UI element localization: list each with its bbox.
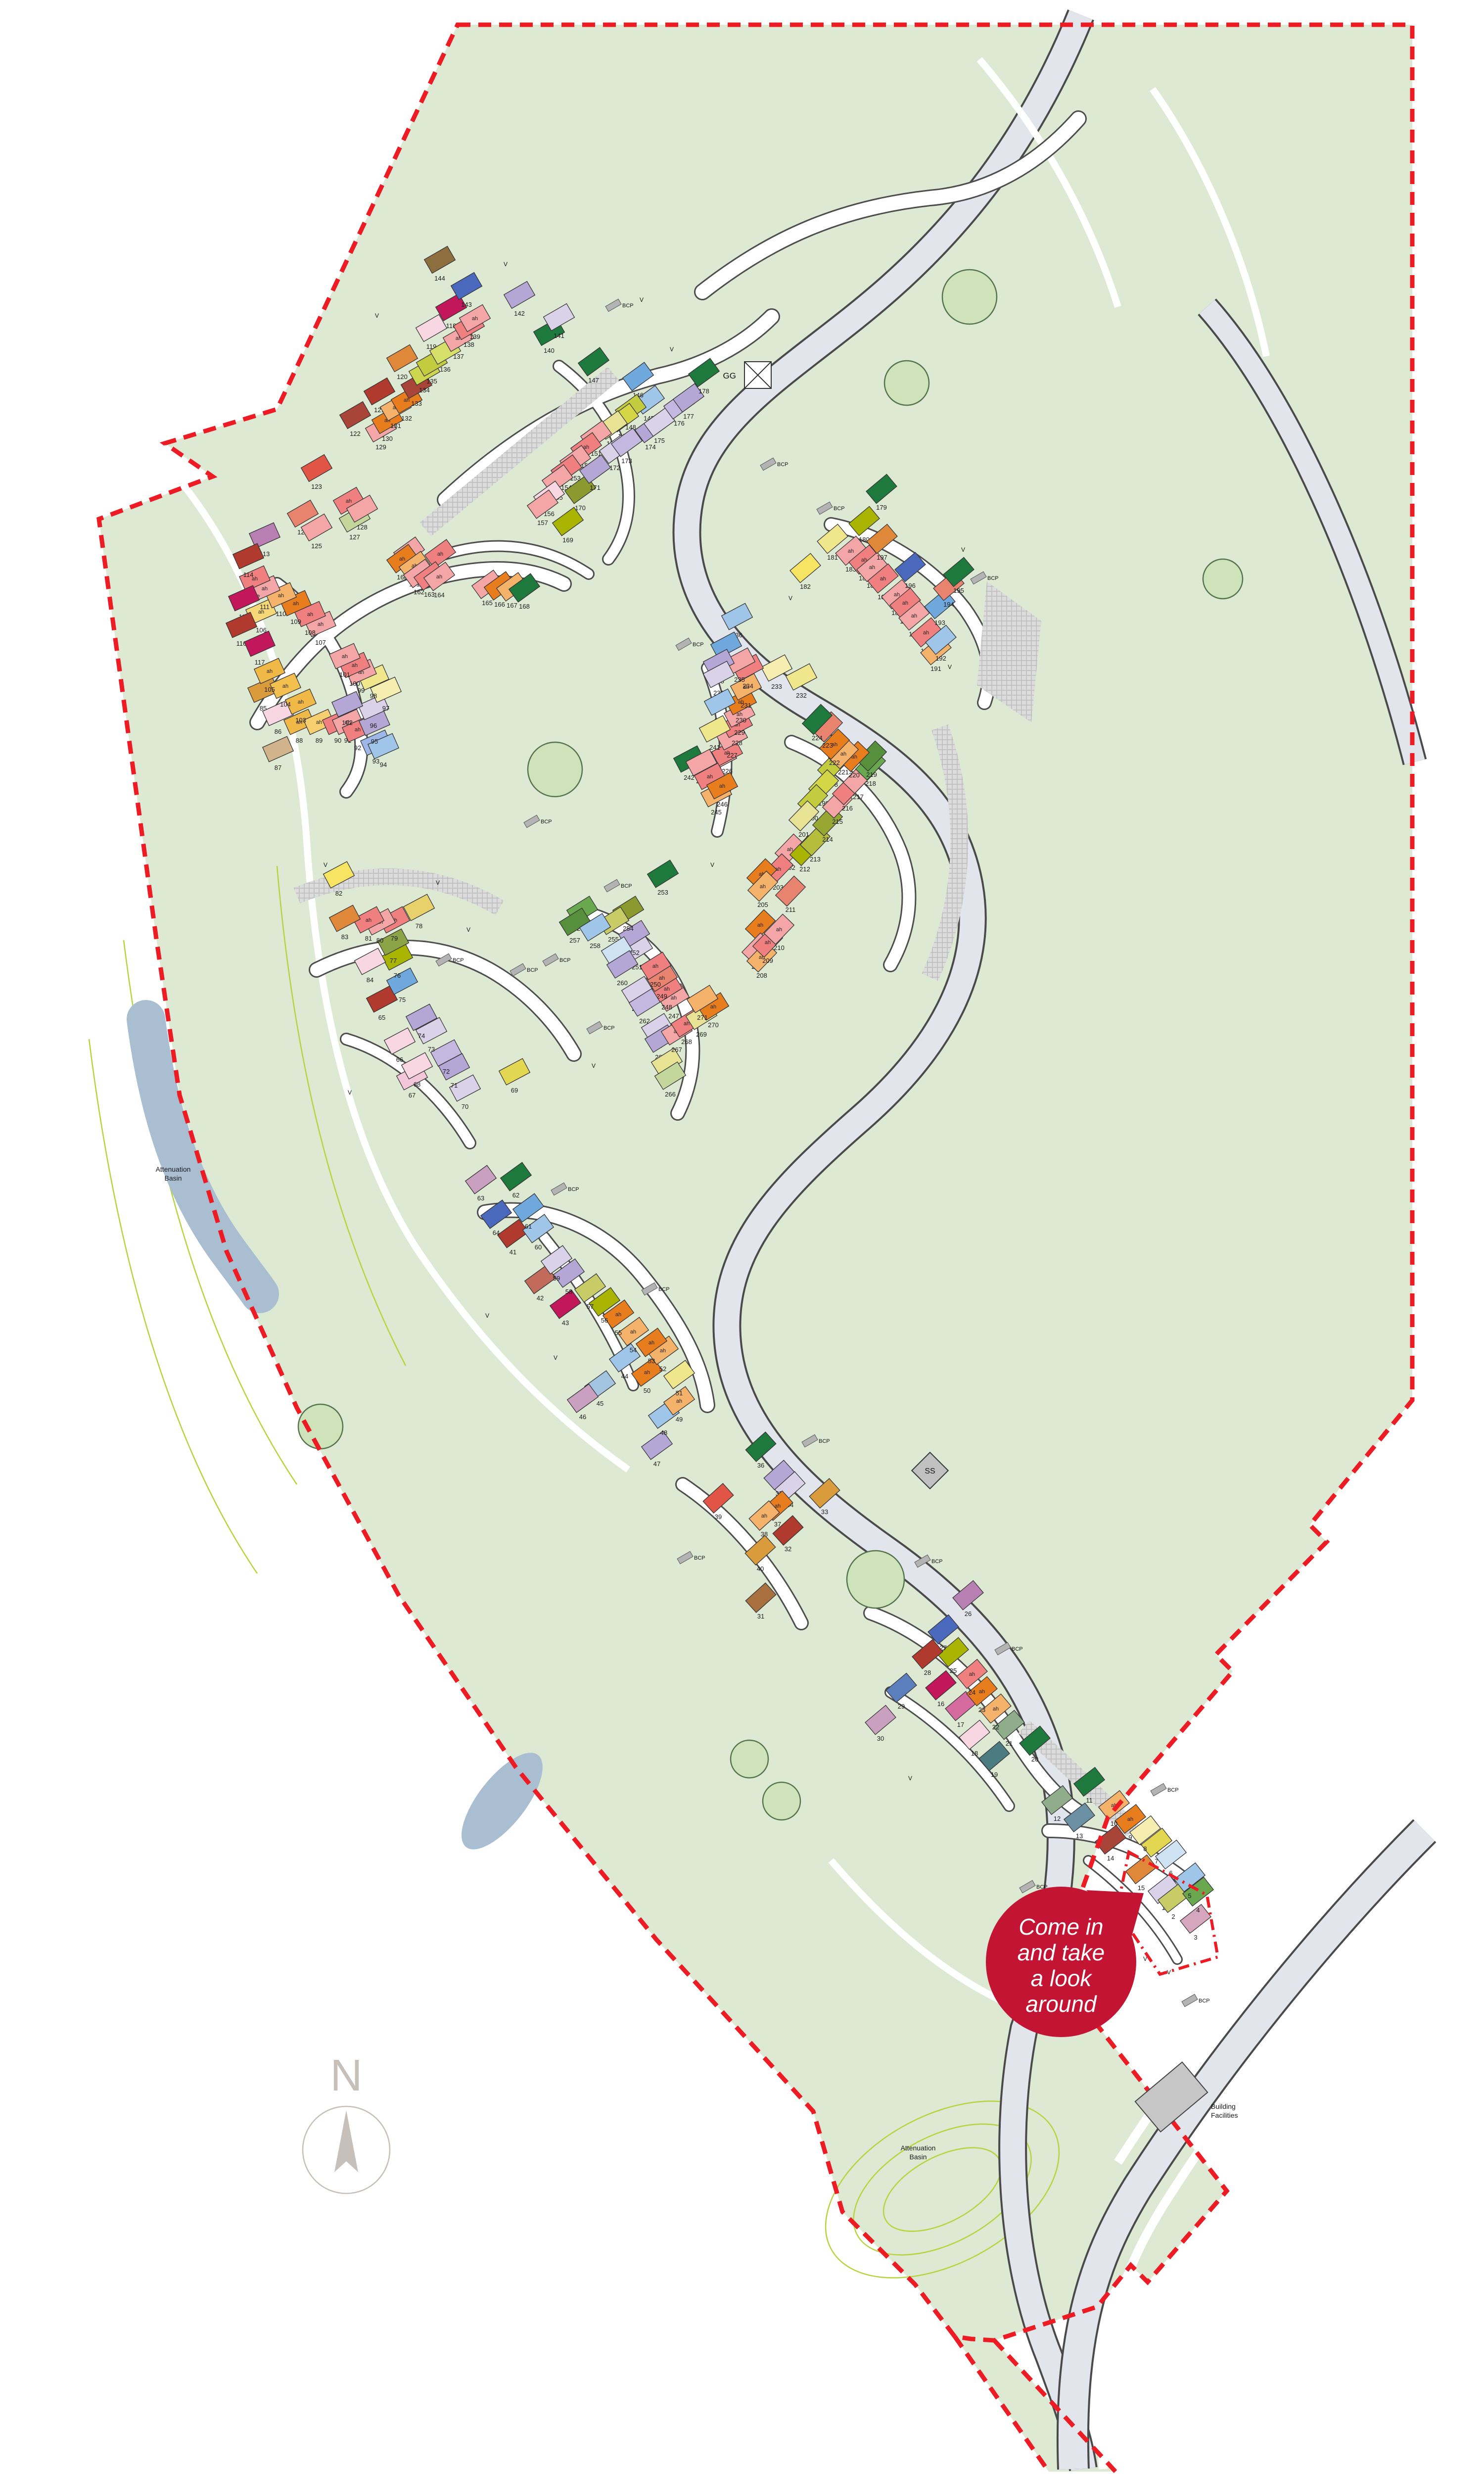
- tree-icon: [847, 1551, 904, 1608]
- affordable-home-label-104: ah: [282, 683, 288, 689]
- plot-number-163: 163: [424, 591, 435, 598]
- bcp-label: BCP: [658, 1286, 670, 1292]
- plot-number-82: 82: [335, 890, 342, 897]
- affordable-home-label-190: ah: [923, 630, 929, 636]
- plot-number-3: 3: [1194, 1934, 1197, 1941]
- affordable-home-label-22: ah: [993, 1706, 999, 1712]
- plot-number-105: 105: [264, 686, 275, 693]
- plot-number-174: 174: [645, 443, 656, 451]
- plot-number-168: 168: [519, 603, 530, 610]
- plot-number-92: 92: [354, 744, 361, 752]
- plot-number-167: 167: [507, 602, 517, 609]
- plot-number-18: 18: [971, 1750, 978, 1757]
- visitor-parking-label-5: V: [908, 1775, 912, 1782]
- plot-number-191: 191: [930, 665, 941, 672]
- plot-number-205: 205: [757, 901, 768, 908]
- plot-number-169: 169: [562, 536, 573, 544]
- plot-number-147: 147: [588, 377, 599, 384]
- plot-number-54: 54: [630, 1346, 637, 1354]
- affordable-home-label-183: ah: [848, 548, 854, 554]
- visitor-parking-label-18: V: [948, 664, 952, 670]
- plot-number-172: 172: [609, 464, 620, 472]
- affordable-home-label-206: ah: [757, 922, 763, 928]
- plot-number-120: 120: [397, 373, 408, 381]
- affordable-home-label-38: ah: [761, 1513, 767, 1519]
- plot-number-4: 4: [1196, 1906, 1200, 1914]
- plot-number-21: 21: [1006, 1740, 1013, 1747]
- plot-number-211: 211: [786, 906, 796, 913]
- plot-number-139: 139: [469, 333, 480, 340]
- plot-number-235: 235: [734, 676, 745, 683]
- plot-number-247: 247: [668, 1012, 679, 1020]
- bcp-label: BCP: [621, 883, 632, 889]
- bcp-label: BCP: [541, 819, 552, 825]
- visitor-parking-label-11: V: [348, 1089, 352, 1096]
- plot-number-232: 232: [796, 692, 807, 699]
- plot-number-196: 196: [905, 582, 916, 589]
- plot-number-79: 79: [391, 935, 398, 942]
- affordable-home-label-81: ah: [366, 917, 371, 923]
- plot-number-253: 253: [657, 889, 668, 896]
- affordable-home-label-188: ah: [902, 600, 908, 606]
- plot-number-216: 216: [842, 805, 853, 812]
- plot-number-250: 250: [650, 981, 661, 988]
- plot-number-100: 100: [349, 680, 360, 687]
- bcp-label: BCP: [694, 1555, 705, 1561]
- plot-number-257: 257: [569, 937, 580, 944]
- affordable-home-label-49: ah: [676, 1398, 682, 1404]
- bcp-label: BCP: [931, 1559, 943, 1565]
- visitor-parking-label-6: V: [485, 1312, 489, 1319]
- plot-number-258: 258: [590, 942, 601, 950]
- plot-number-43: 43: [562, 1319, 569, 1327]
- plot-number-208: 208: [756, 972, 767, 979]
- plot-number-61: 61: [525, 1223, 532, 1230]
- plot-number-93: 93: [372, 758, 379, 765]
- affordable-home-label-205: ah: [760, 884, 766, 890]
- plot-number-103: 103: [295, 716, 306, 724]
- affordable-home-label-164: ah: [436, 574, 442, 580]
- plot-number-89: 89: [316, 737, 323, 744]
- plot-number-74: 74: [418, 1032, 425, 1040]
- affordable-home-label-189: ah: [911, 613, 917, 619]
- plot-number-141: 141: [554, 332, 564, 339]
- affordable-home-label-268: ah: [684, 1021, 690, 1027]
- plot-number-182: 182: [800, 583, 811, 590]
- plot-number-132: 132: [401, 415, 412, 422]
- plot-number-231: 231: [741, 702, 751, 709]
- plot-number-78: 78: [416, 922, 422, 930]
- affordable-home-label-23: ah: [979, 1689, 985, 1695]
- plot-number-66: 66: [396, 1056, 403, 1063]
- plot-number-197: 197: [877, 554, 887, 561]
- svg-text:Basin: Basin: [909, 2153, 927, 2161]
- plot-number-46: 46: [579, 1413, 586, 1421]
- affordable-home-label-53: ah: [649, 1340, 654, 1346]
- plot-number-104: 104: [280, 701, 291, 708]
- plot-number-48: 48: [660, 1429, 667, 1436]
- plot-number-13: 13: [1076, 1832, 1083, 1840]
- plot-number-181: 181: [827, 554, 838, 561]
- plot-number-102: 102: [342, 719, 353, 726]
- plot-number-210: 210: [774, 944, 785, 952]
- plot-number-212: 212: [799, 865, 810, 873]
- plot-number-111: 111: [260, 603, 270, 611]
- plot-number-268: 268: [681, 1038, 692, 1046]
- affordable-home-label-109: ah: [293, 601, 299, 607]
- callout-line-2: and take: [1018, 1940, 1105, 1965]
- plot-number-248: 248: [661, 1003, 672, 1011]
- plot-number-56: 56: [601, 1317, 608, 1324]
- plot-number-23: 23: [978, 1706, 985, 1713]
- affordable-home-label-101: ah: [342, 654, 348, 660]
- plot-number-25: 25: [950, 1667, 957, 1674]
- plot-number-81: 81: [365, 935, 372, 942]
- compass-n-label: N: [330, 2051, 363, 2100]
- affordable-home-label-100: ah: [352, 663, 358, 668]
- plot-number-227: 227: [727, 752, 738, 759]
- affordable-home-label-187: ah: [894, 592, 900, 598]
- plot-number-65: 65: [378, 1014, 385, 1021]
- plot-number-136: 136: [440, 366, 451, 373]
- plot-number-108: 108: [305, 629, 316, 636]
- plot-number-178: 178: [698, 387, 709, 395]
- plot-number-36: 36: [757, 1462, 764, 1469]
- bcp-label: BCP: [819, 1438, 830, 1444]
- bcp-label: BCP: [622, 303, 634, 309]
- plot-number-143: 143: [461, 301, 472, 308]
- plot-number-45: 45: [597, 1400, 603, 1407]
- plot-number-176: 176: [674, 420, 685, 427]
- plot-number-72: 72: [443, 1068, 450, 1075]
- svg-text:Attenuation: Attenuation: [901, 2144, 936, 2152]
- svg-text:Attenuation: Attenuation: [156, 1165, 191, 1173]
- plot-number-75: 75: [399, 996, 406, 1003]
- plot-number-134: 134: [419, 386, 430, 394]
- affordable-home-label-210: ah: [776, 927, 782, 933]
- plot-number-2: 2: [1171, 1913, 1175, 1920]
- visitor-parking-label-16: V: [961, 546, 965, 553]
- affordable-home-label-250: ah: [652, 963, 658, 969]
- plot-number-127: 127: [349, 533, 360, 541]
- plot-number-194: 194: [943, 601, 954, 608]
- affordable-home-label-139: ah: [472, 316, 478, 322]
- affordable-home-label-186: ah: [880, 576, 886, 582]
- bcp-label: BCP: [1167, 1787, 1179, 1793]
- affordable-home-label-209: ah: [765, 940, 771, 946]
- plot-number-245: 245: [711, 809, 722, 816]
- plot-number-63: 63: [477, 1194, 484, 1202]
- plot-number-223: 223: [822, 742, 833, 749]
- plot-number-62: 62: [512, 1191, 519, 1199]
- affordable-home-label-126: ah: [346, 498, 352, 504]
- plot-number-128: 128: [357, 523, 368, 531]
- plot-number-137: 137: [453, 353, 464, 360]
- plot-number-50: 50: [644, 1387, 650, 1394]
- affordable-home-label-202: ah: [787, 847, 793, 853]
- plot-number-246: 246: [717, 801, 728, 808]
- affordable-home-label-103: ah: [298, 699, 304, 705]
- plot-number-87: 87: [275, 764, 281, 771]
- affordable-home-label-24: ah: [969, 1671, 975, 1677]
- visitor-parking-label-14: V: [640, 296, 644, 303]
- tree-icon: [1203, 559, 1243, 599]
- affordable-home-label-247: ah: [671, 995, 677, 1001]
- plot-number-39: 39: [715, 1513, 722, 1521]
- plot-number-130: 130: [382, 435, 393, 442]
- plot-number-234: 234: [742, 682, 753, 690]
- plot-number-173: 173: [621, 457, 632, 465]
- plot-number-94: 94: [380, 761, 387, 768]
- bcp-label: BCP: [777, 462, 788, 468]
- plot-number-30: 30: [877, 1735, 884, 1742]
- plot-number-107: 107: [315, 639, 326, 646]
- plot-number-90: 90: [334, 737, 341, 744]
- plot-number-270: 270: [708, 1021, 719, 1029]
- plot-number-15: 15: [1138, 1884, 1145, 1892]
- plot-number-217: 217: [853, 793, 864, 801]
- callout-line-3: a look: [1031, 1965, 1093, 1991]
- affordable-home-label-185: ah: [869, 565, 875, 571]
- plot-number-52: 52: [659, 1365, 666, 1373]
- plot-number-135: 135: [426, 378, 437, 385]
- plot-number-70: 70: [462, 1103, 468, 1110]
- bcp-label: BCP: [568, 1187, 579, 1192]
- plot-number-44: 44: [621, 1373, 628, 1380]
- plot-number-8: 8: [1143, 1845, 1147, 1853]
- plot-number-140: 140: [544, 347, 555, 354]
- plot-number-131: 131: [390, 422, 401, 429]
- plot-number-165: 165: [482, 599, 493, 607]
- plot-number-138: 138: [464, 341, 474, 348]
- visitor-parking-label-13: V: [504, 261, 508, 268]
- plot-number-96: 96: [370, 722, 377, 729]
- plot-number-230: 230: [736, 716, 746, 724]
- plot-number-12: 12: [1054, 1815, 1061, 1822]
- visitor-parking-label-19: V: [710, 861, 714, 868]
- plot-number-14: 14: [1107, 1855, 1114, 1862]
- plot-number-33: 33: [821, 1508, 828, 1516]
- plot-number-58: 58: [565, 1288, 572, 1295]
- plot-number-164: 164: [434, 591, 445, 599]
- plot-number-51: 51: [676, 1389, 683, 1397]
- plot-number-73: 73: [428, 1046, 435, 1053]
- affordable-home-label-107: ah: [318, 621, 324, 627]
- plot-number-69: 69: [511, 1087, 518, 1094]
- affordable-home-label-160: ah: [399, 556, 405, 562]
- affordable-home-label-108: ah: [307, 612, 313, 618]
- building-facilities-label: Building: [1211, 2102, 1236, 2110]
- plot-number-260: 260: [617, 979, 628, 987]
- plot-number-125: 125: [311, 542, 322, 550]
- plot-number-193: 193: [934, 619, 945, 626]
- gg-label: GG: [723, 371, 736, 381]
- plot-number-267: 267: [671, 1046, 682, 1053]
- plot-number-7: 7: [1155, 1857, 1158, 1865]
- affordable-home-label-248: ah: [664, 986, 670, 992]
- affordable-home-label-246: ah: [719, 783, 725, 789]
- plot-number-218: 218: [865, 780, 876, 787]
- plot-number-229: 229: [734, 729, 745, 736]
- plot-number-271: 271: [697, 1014, 708, 1021]
- plot-number-76: 76: [394, 972, 401, 979]
- plot-number-109: 109: [290, 618, 301, 625]
- plot-number-16: 16: [937, 1700, 944, 1708]
- plot-number-26: 26: [965, 1610, 972, 1618]
- plot-number-110: 110: [276, 610, 286, 618]
- plot-number-84: 84: [367, 976, 373, 984]
- plot-number-157: 157: [537, 519, 548, 526]
- callout-line-4: around: [1025, 1991, 1097, 2017]
- visitor-parking-label-9: V: [436, 879, 440, 886]
- affordable-home-label-158: ah: [437, 551, 443, 557]
- plot-number-19: 19: [991, 1771, 998, 1778]
- plot-number-11: 11: [1086, 1797, 1093, 1804]
- affordable-home-label-50: ah: [644, 1370, 650, 1376]
- affordable-home-label-221: ah: [840, 751, 846, 757]
- plot-number-222: 222: [829, 759, 840, 766]
- plot-number-101: 101: [339, 671, 350, 678]
- affordable-home-label-52: ah: [660, 1348, 666, 1354]
- plot-number-42: 42: [537, 1294, 544, 1302]
- visitor-parking-label-12: V: [375, 312, 379, 319]
- plot-number-37: 37: [774, 1521, 781, 1528]
- affordable-home-label-110: ah: [278, 593, 284, 599]
- bcp-label: BCP: [453, 957, 464, 963]
- plot-number-60: 60: [535, 1243, 542, 1251]
- plot-number-59: 59: [553, 1275, 560, 1282]
- plot-number-80: 80: [376, 937, 383, 944]
- plot-number-40: 40: [757, 1565, 764, 1572]
- plot-number-47: 47: [653, 1460, 660, 1468]
- plot-number-221: 221: [838, 768, 849, 776]
- affordable-home-label-111: ah: [262, 586, 268, 592]
- plot-number-99: 99: [358, 687, 365, 694]
- plot-number-83: 83: [341, 933, 348, 941]
- plot-number-219: 219: [866, 771, 877, 778]
- plot-number-114: 114: [243, 571, 254, 578]
- affordable-home-label-270: ah: [710, 1004, 716, 1010]
- plot-number-166: 166: [494, 601, 505, 608]
- plot-number-22: 22: [992, 1723, 999, 1731]
- plot-number-28: 28: [924, 1669, 931, 1676]
- plot-number-266: 266: [665, 1091, 676, 1098]
- plot-number-5: 5: [1188, 1892, 1191, 1900]
- plot-number-170: 170: [575, 504, 586, 512]
- plot-number-57: 57: [587, 1303, 594, 1310]
- plot-number-117: 117: [255, 659, 265, 666]
- plot-number-133: 133: [411, 400, 422, 407]
- plot-number-98: 98: [370, 692, 377, 700]
- plot-number-241: 241: [709, 744, 720, 751]
- plot-number-228: 228: [732, 739, 742, 747]
- bcp-label: BCP: [1199, 1998, 1210, 2004]
- bcp-label: BCP: [603, 1025, 615, 1031]
- visitor-parking-label-15: V: [670, 346, 674, 353]
- plot-number-55: 55: [615, 1329, 622, 1336]
- affordable-home-label-105: ah: [267, 668, 273, 674]
- plot-number-53: 53: [648, 1357, 655, 1365]
- tree-icon: [528, 742, 582, 797]
- plot-number-24: 24: [969, 1689, 975, 1696]
- plot-number-179: 179: [876, 504, 887, 511]
- plot-number-214: 214: [822, 836, 833, 843]
- plot-number-233: 233: [771, 683, 782, 690]
- bcp-label: BCP: [559, 957, 571, 963]
- plot-number-67: 67: [409, 1092, 416, 1099]
- visitor-parking-label-10: V: [466, 926, 470, 933]
- plot-number-215: 215: [832, 818, 843, 825]
- affordable-home-label-55: ah: [615, 1312, 621, 1318]
- visitor-parking-label-8: V: [324, 861, 327, 868]
- tree-icon: [763, 1782, 800, 1820]
- affordable-home-label-54: ah: [630, 1329, 636, 1335]
- plot-number-269: 269: [696, 1031, 707, 1038]
- plot-number-142: 142: [514, 310, 525, 317]
- plot-number-220: 220: [849, 771, 860, 779]
- substation-label: SS: [925, 1467, 935, 1475]
- plot-number-32: 32: [785, 1545, 791, 1553]
- plot-number-123: 123: [311, 483, 322, 490]
- plot-number-122: 122: [350, 430, 361, 437]
- bcp-label: BCP: [1012, 1646, 1023, 1652]
- tree-icon: [942, 270, 997, 324]
- plot-number-41: 41: [510, 1248, 516, 1256]
- plot-number-97: 97: [382, 705, 389, 712]
- bcp-label: BCP: [693, 642, 704, 648]
- visitor-parking-label-7: V: [554, 1354, 557, 1361]
- bcp-label: BCP: [834, 506, 845, 512]
- bcp-label: BCP: [987, 575, 999, 581]
- plot-number-175: 175: [654, 437, 665, 444]
- plot-number-224: 224: [812, 734, 823, 742]
- plot-number-20: 20: [1031, 1756, 1038, 1763]
- plot-number-177: 177: [683, 413, 694, 420]
- plot-number-254: 254: [623, 925, 634, 932]
- plot-number-88: 88: [296, 737, 303, 744]
- plot-number-64: 64: [493, 1229, 500, 1237]
- plot-number-29: 29: [898, 1703, 905, 1710]
- plot-number-86: 86: [275, 728, 281, 735]
- plot-number-95: 95: [371, 738, 378, 745]
- plot-number-49: 49: [676, 1416, 683, 1423]
- plot-number-171: 171: [590, 484, 601, 491]
- bcp-label: BCP: [527, 967, 538, 973]
- plot-number-77: 77: [390, 957, 397, 964]
- plot-number-68: 68: [414, 1081, 420, 1088]
- site-plan-map: 12345678ah9ah101112131415161718192021ah2…: [0, 0, 1484, 2474]
- plot-number-129: 129: [375, 443, 386, 451]
- affordable-home-label-244: ah: [707, 774, 713, 780]
- visitor-parking-label-3: V: [1167, 1969, 1171, 1976]
- plot-number-209: 209: [762, 957, 773, 964]
- plot-number-195: 195: [953, 587, 964, 594]
- visitor-parking-label-17: V: [788, 595, 792, 602]
- plot-number-31: 31: [757, 1613, 764, 1620]
- plot-number-9: 9: [1128, 1834, 1132, 1841]
- plot-number-17: 17: [957, 1721, 964, 1728]
- affordable-home-label-89: ah: [316, 719, 322, 725]
- affordable-home-label-92: ah: [355, 727, 361, 733]
- affordable-home-label-9: ah: [1127, 1816, 1133, 1822]
- plot-number-144: 144: [434, 275, 445, 282]
- callout-line-1: Come in: [1019, 1914, 1103, 1940]
- svg-text:Facilities: Facilities: [1211, 2111, 1238, 2119]
- tree-icon: [884, 361, 929, 405]
- plot-number-71: 71: [451, 1082, 458, 1089]
- plot-number-213: 213: [810, 856, 821, 863]
- tree-icon: [731, 1740, 768, 1778]
